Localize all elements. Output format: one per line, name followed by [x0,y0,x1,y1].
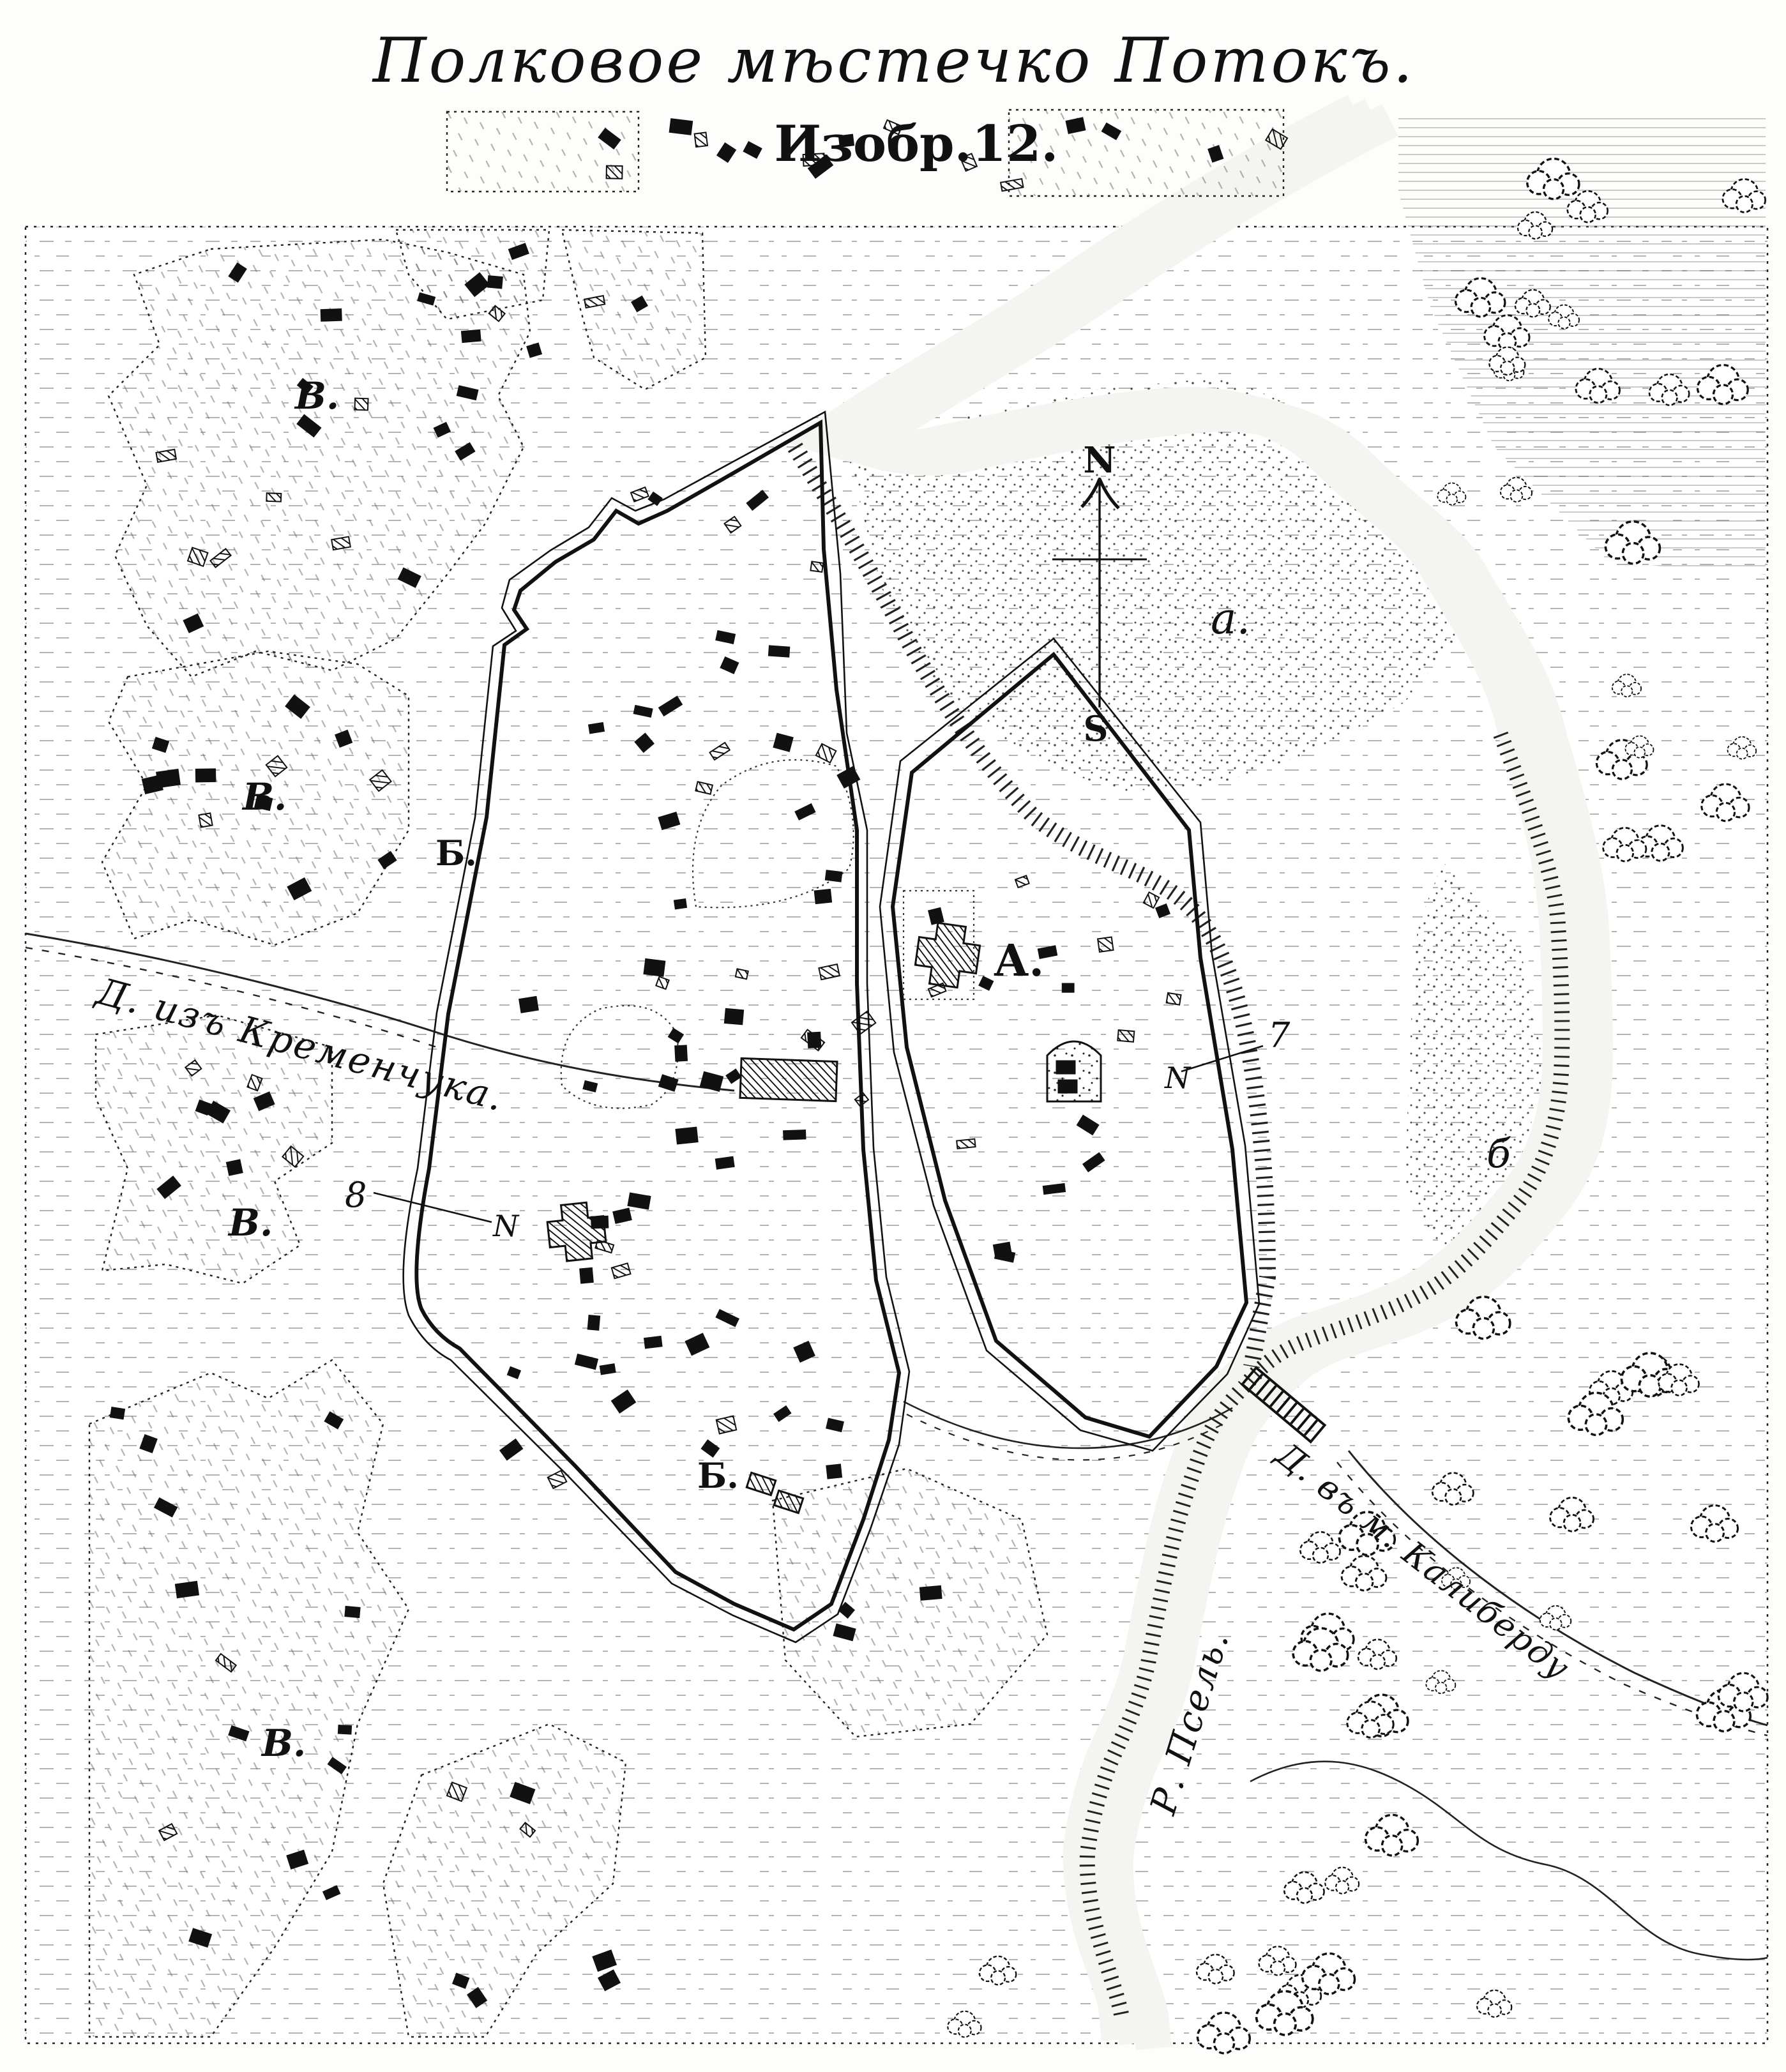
house [670,119,692,135]
house [110,1407,125,1419]
house [808,1032,821,1048]
house [674,899,686,909]
house [826,870,842,881]
house [736,969,748,979]
house [354,398,368,411]
label-town-b2: Б. [697,1455,739,1496]
compass-north-label: N [1083,439,1116,481]
label-suburb-v3: В. [227,1201,273,1244]
map-title: Полковое мѣстечко Потокъ. [372,25,1415,96]
house [920,1586,942,1600]
house [644,1336,662,1348]
house [488,276,503,288]
house [580,1268,593,1283]
house [628,1193,651,1209]
house [1063,983,1074,992]
house [176,1582,199,1598]
map-canvas: N S Полковое мѣстечко Потокъ. Изобр.12. … [0,0,1786,2072]
house [345,1607,359,1617]
house [199,813,212,827]
label-bend-b: б [1487,1130,1511,1177]
engraved-map-page: N S Полковое мѣстечко Потокъ. Изобр.12. … [0,0,1786,2072]
riverside-plot-a [447,112,639,192]
label-suburb-v1: В. [294,374,339,418]
house [591,1216,608,1229]
house [266,493,281,501]
house [957,1139,975,1149]
house [1117,1030,1134,1042]
house [1043,1184,1065,1194]
house [810,561,823,572]
house [744,142,762,158]
house [1167,993,1181,1005]
label-town-b1: Б. [435,833,477,873]
house [769,646,789,656]
yard-house-2 [1059,1080,1077,1093]
label-suburb-v2: В. [241,775,287,819]
house [588,1315,600,1330]
house [644,959,665,976]
house [519,997,538,1013]
house [607,166,623,179]
label-ref-7-mark: N [1164,1061,1192,1095]
label-ref-8-mark: N [492,1209,520,1243]
house [338,1725,351,1734]
figure-caption: Изобр.12. [775,115,1059,173]
house [1098,937,1113,951]
house [815,889,831,904]
house [589,723,604,733]
house [331,536,351,550]
label-ref-8: 8 [345,1175,367,1215]
label-citadel-a: А. [994,935,1044,987]
label-suburb-v4: В. [261,1721,306,1765]
house [227,1160,243,1175]
compass-south-label: S [1084,708,1109,749]
market-building [740,1058,837,1101]
house [695,132,708,147]
house [826,1464,842,1478]
house [783,1130,805,1140]
house [676,1128,698,1144]
house [717,143,736,162]
house [196,769,216,782]
house [725,1009,743,1024]
house [928,908,943,925]
house [716,1157,734,1169]
house [675,1045,687,1061]
house [462,330,481,342]
house [600,1364,616,1374]
house [156,769,180,787]
house [716,1416,736,1434]
label-meadow-a: а. [1211,594,1250,644]
yard-house-1 [1057,1061,1075,1073]
house [1066,117,1086,133]
house [321,309,342,321]
label-ref-7: 7 [1268,1015,1290,1055]
